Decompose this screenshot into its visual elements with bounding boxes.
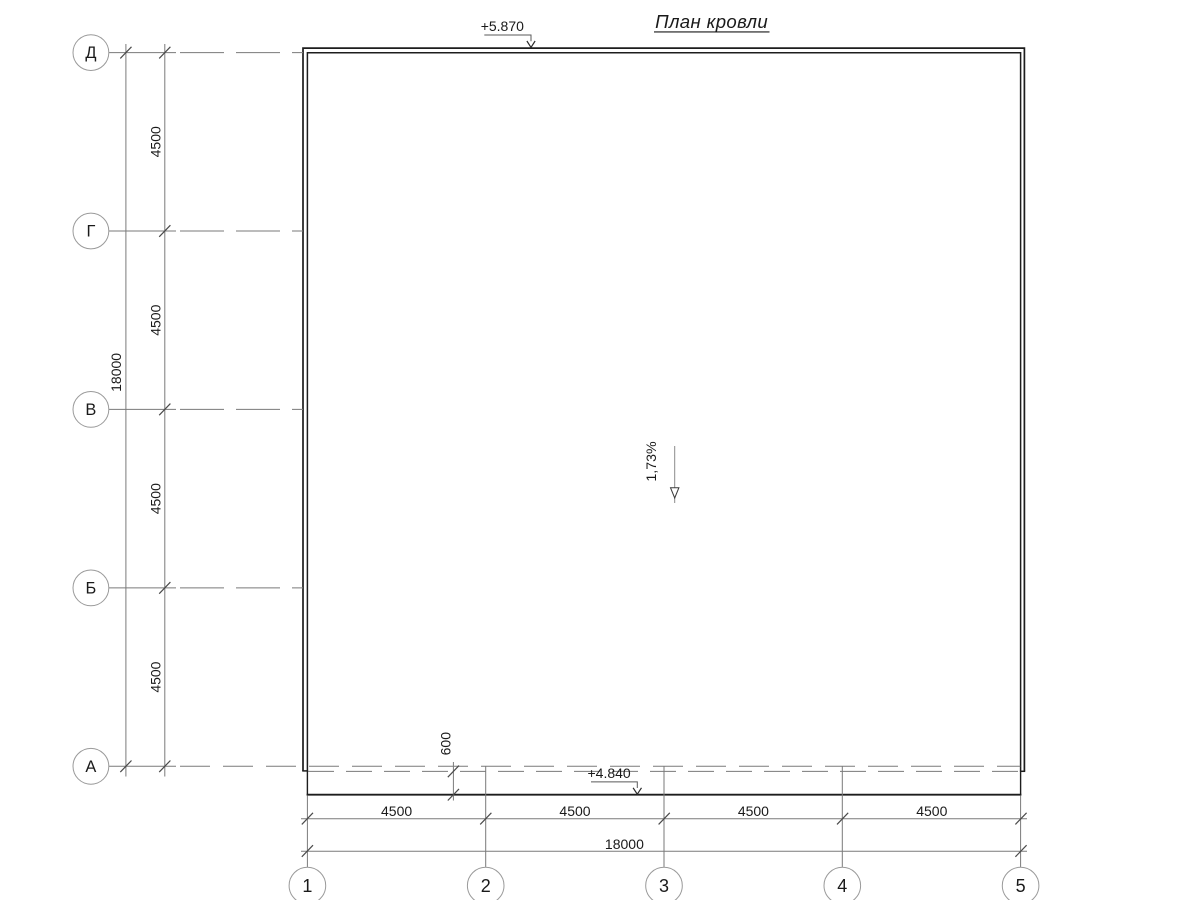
- svg-text:4500: 4500: [148, 661, 164, 692]
- svg-text:5: 5: [1016, 876, 1026, 896]
- svg-text:18000: 18000: [605, 836, 644, 852]
- svg-text:1,73%: 1,73%: [644, 441, 660, 482]
- svg-text:+4.840: +4.840: [588, 765, 631, 781]
- svg-text:4500: 4500: [738, 803, 769, 819]
- svg-text:4500: 4500: [559, 803, 590, 819]
- svg-text:3: 3: [659, 876, 669, 896]
- svg-text:2: 2: [481, 876, 491, 896]
- svg-text:Д: Д: [85, 44, 96, 62]
- svg-text:А: А: [85, 758, 96, 776]
- svg-text:План кровли: План кровли: [655, 11, 768, 32]
- svg-text:1: 1: [302, 876, 312, 896]
- svg-text:В: В: [85, 401, 96, 419]
- svg-text:600: 600: [438, 732, 454, 756]
- svg-text:+5.870: +5.870: [481, 18, 524, 34]
- svg-text:4500: 4500: [148, 304, 164, 335]
- svg-text:4: 4: [837, 876, 847, 896]
- svg-text:4500: 4500: [916, 803, 947, 819]
- svg-text:Г: Г: [86, 223, 95, 241]
- svg-text:4500: 4500: [148, 126, 164, 157]
- svg-text:18000: 18000: [108, 353, 124, 392]
- svg-text:Б: Б: [86, 579, 97, 597]
- svg-text:4500: 4500: [381, 803, 412, 819]
- svg-text:4500: 4500: [148, 483, 164, 514]
